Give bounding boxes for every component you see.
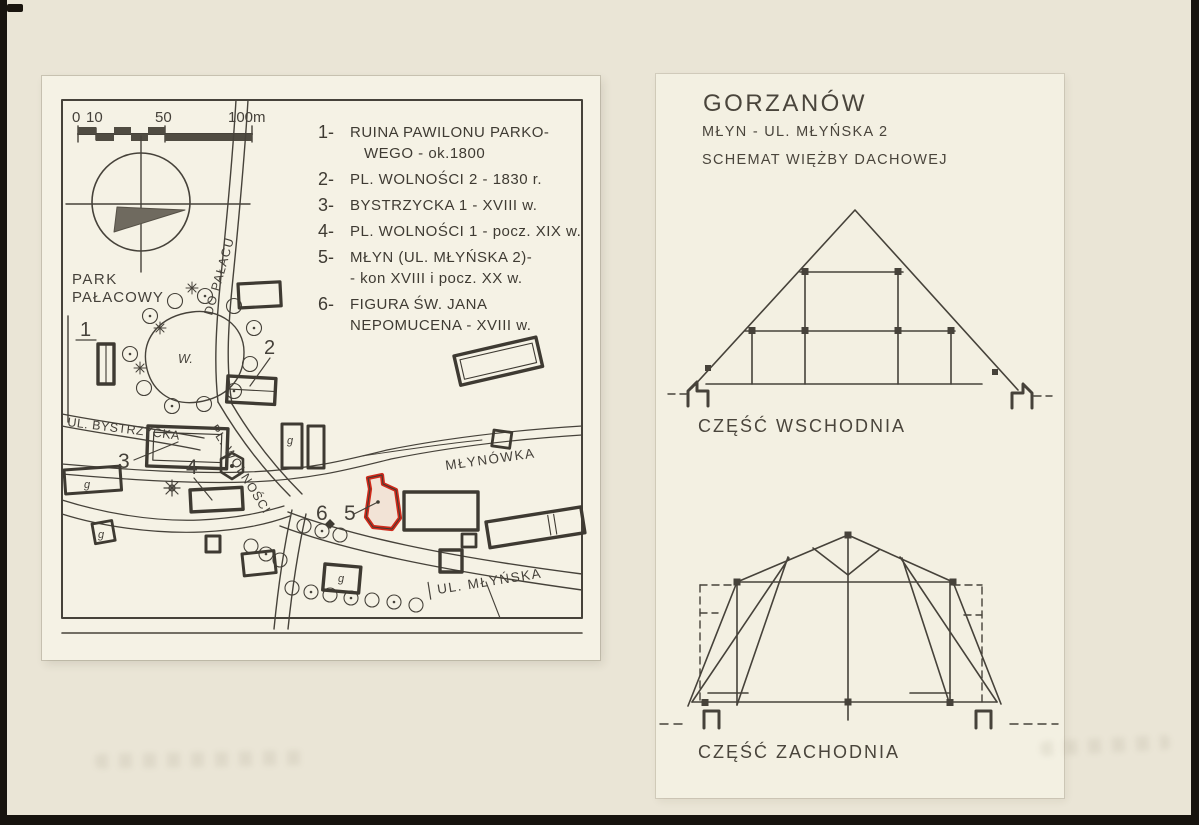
map-number-6: 6 bbox=[316, 502, 328, 525]
legend-item: 4- PL. WOLNOŚCI 1 - pocz. XIX w. bbox=[318, 221, 590, 242]
map-number-4: 4 bbox=[186, 456, 198, 479]
east-caption: CZĘŚĆ WSCHODNIA bbox=[698, 416, 906, 437]
scale-label-50: 50 bbox=[155, 109, 172, 126]
outbuilding-label: g bbox=[84, 479, 91, 491]
park-label-line2: PAŁACOWY bbox=[72, 289, 164, 306]
legend-number: 6- bbox=[318, 294, 350, 336]
pond-label: W. bbox=[178, 352, 193, 366]
scan-edge-right bbox=[1191, 0, 1199, 825]
joint-markers bbox=[702, 532, 957, 707]
ground-dashes bbox=[668, 394, 1052, 396]
legend-text: NEPOMUCENA - XVIII w. bbox=[350, 315, 590, 336]
map-number-3: 3 bbox=[118, 450, 130, 473]
legend-item: 2- PL. WOLNOŚCI 2 - 1830 r. bbox=[318, 169, 590, 190]
outbuilding-label: g bbox=[287, 435, 294, 447]
road-to-palace-label: DO PAŁACU bbox=[201, 236, 237, 317]
outbuilding-label: g bbox=[338, 573, 345, 585]
site-plan-sheet: 0 10 50 100m bbox=[42, 76, 600, 660]
bystrzycka-label: UL. BYSTRZYCKA bbox=[67, 415, 181, 443]
map-number-2: 2 bbox=[264, 337, 275, 359]
masonry-piers bbox=[688, 382, 1032, 408]
scale-label-0: 0 bbox=[72, 109, 80, 126]
former-profile-dashed bbox=[700, 585, 982, 705]
scan-edge-bottom bbox=[0, 815, 1199, 825]
sheet-subtitle-scheme: SCHEMAT WIĘŻBY DACHOWEJ bbox=[702, 152, 948, 168]
west-truss-diagram bbox=[658, 516, 1060, 742]
building-4 bbox=[190, 487, 243, 512]
west-caption: CZĘŚĆ ZACHODNIA bbox=[698, 742, 900, 763]
legend-text: PL. WOLNOŚCI 2 - 1830 r. bbox=[350, 169, 590, 190]
legend-text: MŁYN (UL. MŁYŃSKA 2)- bbox=[350, 247, 590, 268]
east-truss-diagram bbox=[666, 182, 1054, 414]
legend-text: - kon XVIII i pocz. XX w. bbox=[350, 268, 590, 289]
legend-number: 1- bbox=[318, 122, 350, 164]
star-marker bbox=[164, 480, 180, 496]
legend-item: 5- MŁYN (UL. MŁYŃSKA 2)- - kon XVIII i p… bbox=[318, 247, 590, 289]
legend-number: 3- bbox=[318, 195, 350, 216]
mill-building-highlighted bbox=[366, 475, 400, 529]
map-number-1: 1 bbox=[80, 319, 91, 341]
sheet-title: GORZANÓW bbox=[703, 90, 867, 118]
legend-text: FIGURA ŚW. JANA bbox=[350, 294, 590, 315]
legend-item: 6- FIGURA ŚW. JANA NEPOMUCENA - XVIII w. bbox=[318, 294, 590, 336]
scale-bar: 0 10 50 100m bbox=[72, 109, 266, 142]
joint-markers bbox=[705, 268, 998, 375]
mlynowka-label: MŁYNÓWKA bbox=[444, 445, 536, 472]
legend-item: 1- RUINA PAWILONU PARKO- WEGO - ok.1800 bbox=[318, 122, 590, 164]
legend-item: 3- BYSTRZYCKA 1 - XVIII w. bbox=[318, 195, 590, 216]
roof-truss-sheet: GORZANÓW MŁYN - UL. MŁYŃSKA 2 SCHEMAT WI… bbox=[656, 74, 1064, 798]
legend: 1- RUINA PAWILONU PARKO- WEGO - ok.1800 … bbox=[318, 122, 590, 341]
map-number-5: 5 bbox=[344, 502, 356, 525]
legend-number: 4- bbox=[318, 221, 350, 242]
scale-label-10: 10 bbox=[86, 109, 103, 126]
outbuilding-label: g bbox=[98, 529, 105, 541]
legend-text: BYSTRZYCKA 1 - XVIII w. bbox=[350, 195, 590, 216]
legend-number: 5- bbox=[318, 247, 350, 289]
scan-artifact bbox=[7, 4, 23, 12]
legend-text: RUINA PAWILONU PARKO- bbox=[350, 122, 590, 143]
sheet-subtitle-address: MŁYN - UL. MŁYŃSKA 2 bbox=[702, 124, 888, 140]
bleedthrough-mark bbox=[95, 750, 310, 769]
legend-number: 2- bbox=[318, 169, 350, 190]
legend-text: WEGO - ok.1800 bbox=[364, 143, 590, 164]
scan-edge-left bbox=[0, 0, 7, 825]
park-label-line1: PARK bbox=[72, 271, 118, 288]
legend-text: PL. WOLNOŚCI 1 - pocz. XIX w. bbox=[350, 221, 590, 242]
